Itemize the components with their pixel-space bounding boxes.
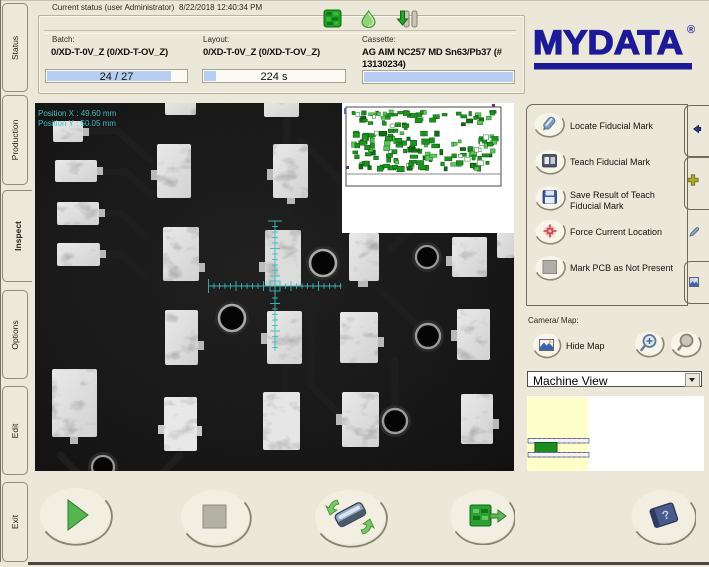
svg-text:Position Y : 50.05 mm: Position Y : 50.05 mm [38, 119, 116, 128]
svg-text:Position X : 49.60 mm: Position X : 49.60 mm [38, 109, 117, 118]
svg-text:MYDATA: MYDATA [533, 24, 683, 62]
svg-text:®: ® [687, 24, 695, 36]
